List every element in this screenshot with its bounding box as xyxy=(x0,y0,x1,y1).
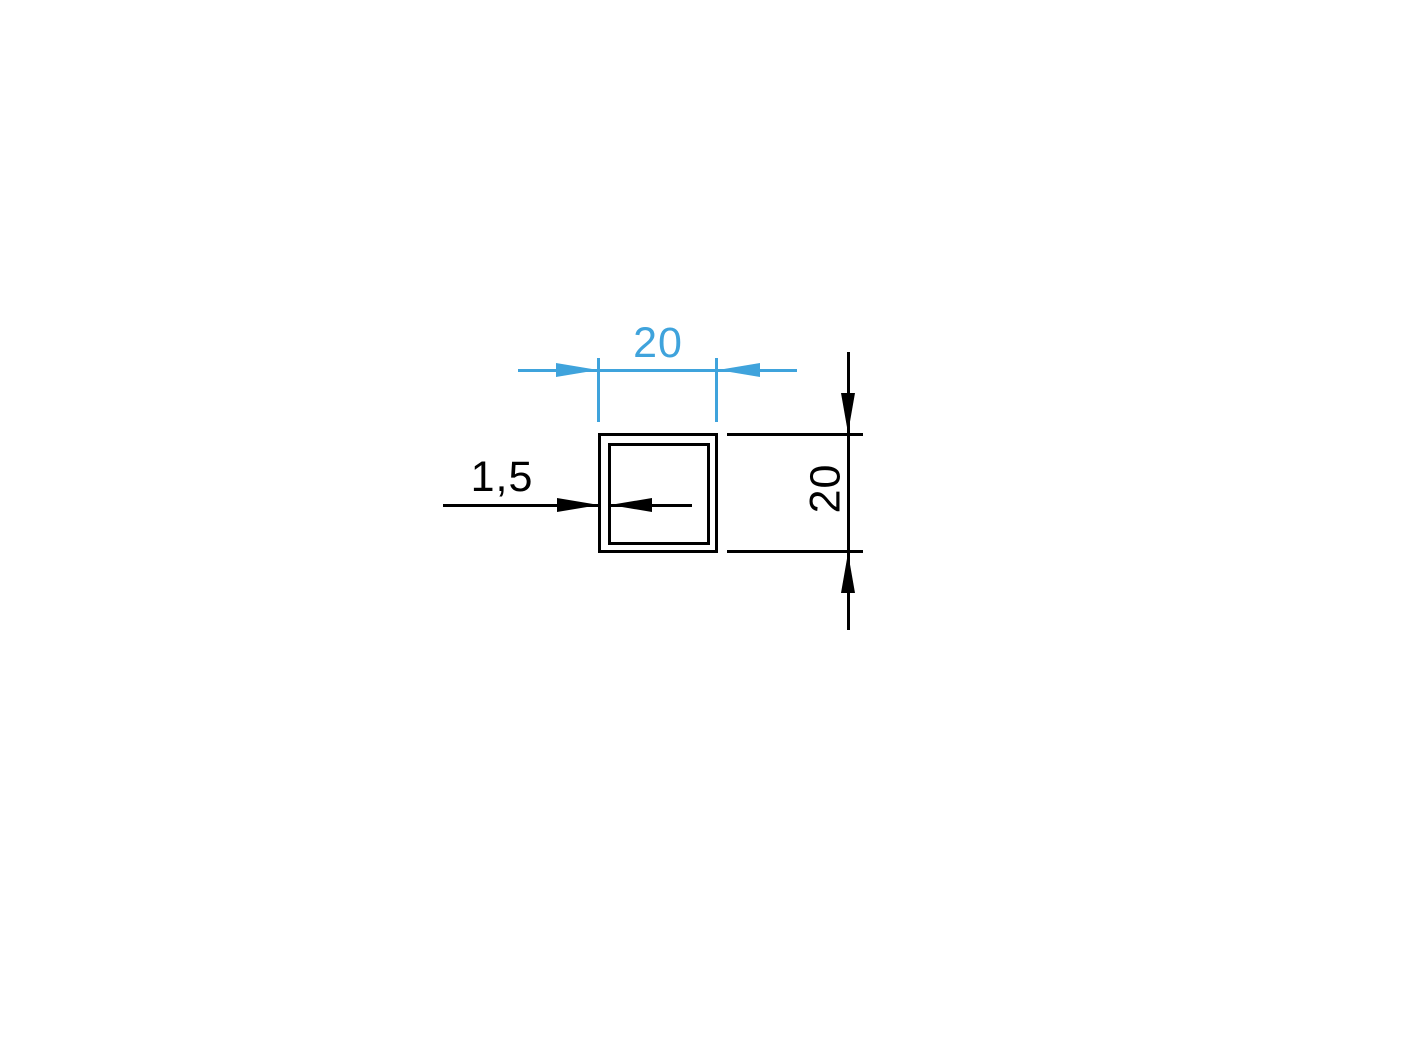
profile-inner-square xyxy=(608,443,710,545)
height-dimension-label-box: 20 xyxy=(786,448,866,528)
arrowhead-right-icon xyxy=(556,363,598,377)
arrowhead-right-icon xyxy=(557,498,599,512)
wall-thickness-inner-line xyxy=(610,504,692,507)
arrowhead-up-icon xyxy=(841,553,855,593)
profile-drawing-canvas: 20 20 1,5 xyxy=(0,0,1413,1058)
wall-thickness-label: 1,5 xyxy=(457,456,547,499)
width-dimension-label: 20 xyxy=(613,322,703,365)
arrowhead-left-icon xyxy=(718,363,760,377)
height-dimension-label: 20 xyxy=(805,463,848,513)
height-extension-line-top xyxy=(727,433,863,436)
arrowhead-down-icon xyxy=(841,393,855,433)
